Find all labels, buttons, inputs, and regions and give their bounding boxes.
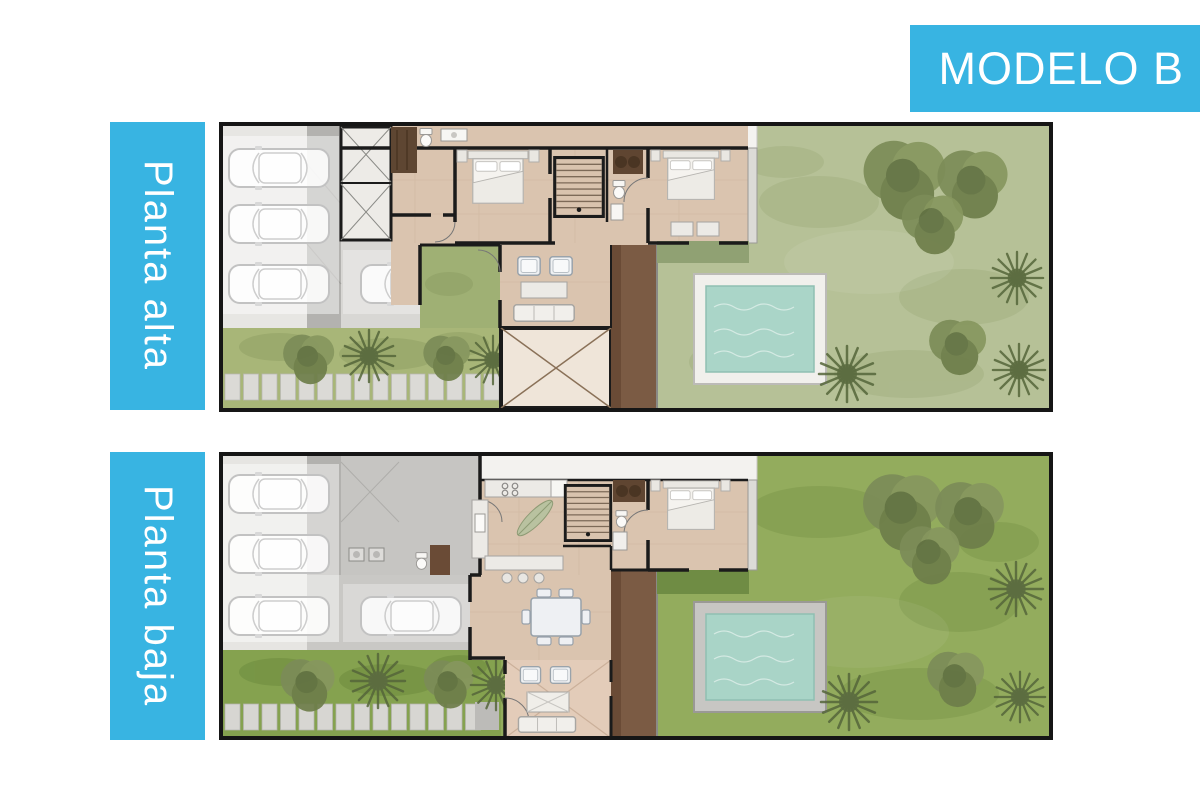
stairs	[565, 485, 610, 540]
grass-plant-icon	[351, 654, 405, 708]
wood-deck	[611, 245, 657, 410]
bar-stools	[502, 573, 544, 583]
plan-label-planta-alta-text: Planta alta	[135, 160, 180, 371]
model-banner: MODELO B	[910, 25, 1200, 112]
nightstand	[651, 480, 660, 491]
hedge-strip	[221, 650, 521, 738]
dark-hedge	[657, 570, 749, 594]
wood-deck	[611, 570, 657, 740]
bed	[663, 481, 719, 529]
floorplan-planta-alta	[219, 122, 1053, 412]
nightstand	[529, 150, 539, 162]
toilet-icon	[613, 181, 625, 199]
nightstand	[457, 150, 467, 162]
pool	[694, 602, 826, 712]
sink	[441, 129, 467, 141]
grass-plant-icon	[821, 674, 877, 730]
double-height-void	[501, 328, 611, 408]
toilet-icon	[416, 553, 427, 570]
floorplan-planta-baja-svg	[219, 452, 1053, 740]
service-closet	[430, 545, 450, 575]
grass-plant-icon	[819, 346, 875, 402]
car-icon	[229, 472, 329, 516]
model-banner-title: MODELO B	[938, 43, 1184, 95]
bed	[663, 151, 719, 199]
car-icon	[229, 262, 329, 306]
grass-plant-icon	[991, 252, 1043, 304]
walkway	[225, 374, 499, 400]
floorplan-planta-baja	[219, 452, 1053, 740]
shower	[613, 532, 627, 550]
plan-label-planta-baja: Planta baja	[110, 452, 205, 740]
kitchen-sink	[475, 514, 485, 532]
outer-wall-band	[748, 148, 757, 243]
grass-plant-icon	[989, 562, 1043, 616]
closet	[613, 480, 645, 502]
car-icon	[229, 594, 329, 638]
outer-wall-band	[748, 480, 757, 570]
bench	[671, 222, 693, 236]
toilet-icon	[420, 129, 432, 147]
sink	[611, 204, 623, 220]
flyer-page: MODELO B Planta alta Planta baja	[0, 0, 1200, 795]
car-icon	[229, 532, 329, 576]
grass-plant-icon	[993, 344, 1045, 396]
floorplan-planta-alta-svg	[219, 122, 1053, 412]
light-well	[341, 127, 391, 240]
car-icon	[229, 202, 329, 246]
nightstand	[651, 150, 660, 161]
floor-dressing	[391, 245, 420, 305]
car-icon	[229, 146, 329, 190]
bed	[468, 151, 528, 203]
nightstand	[721, 480, 730, 491]
grass-plant-icon	[343, 330, 395, 382]
pool	[694, 274, 826, 384]
nightstand	[721, 150, 730, 161]
plan-label-planta-alta: Planta alta	[110, 122, 205, 410]
bench	[697, 222, 719, 236]
roof-strip	[480, 454, 757, 480]
toilet-icon	[616, 511, 627, 528]
car-icon	[361, 594, 461, 638]
closet	[613, 150, 643, 174]
grass-plant-icon	[995, 672, 1045, 722]
hedge-strip	[221, 328, 517, 410]
closet	[391, 127, 417, 173]
plan-label-planta-baja-text: Planta baja	[135, 485, 180, 707]
side-garden-shade	[425, 272, 473, 296]
kitchen-island	[485, 556, 563, 570]
stairs	[555, 158, 604, 217]
